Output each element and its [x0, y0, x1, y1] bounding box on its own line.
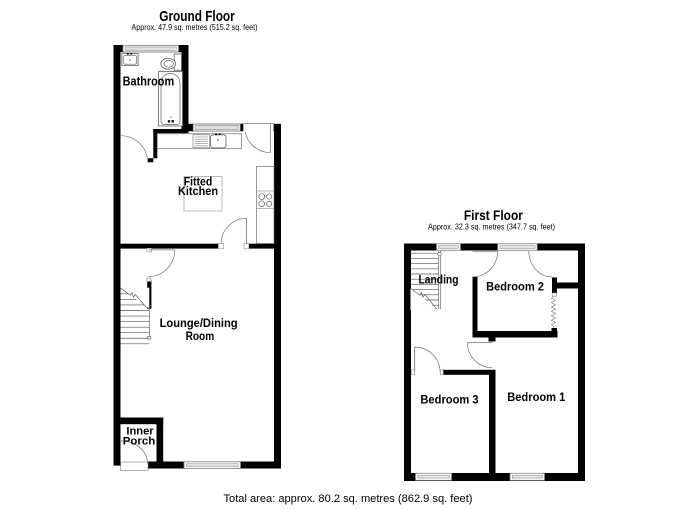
svg-text:Approx. 32.3 sq. metres (347.7: Approx. 32.3 sq. metres (347.7 sq. feet)	[428, 221, 555, 231]
svg-text:Bedroom 3: Bedroom 3	[420, 393, 478, 407]
svg-text:Bathroom: Bathroom	[123, 74, 175, 89]
svg-text:Lounge/Dining: Lounge/Dining	[160, 316, 238, 330]
svg-text:Kitchen: Kitchen	[178, 184, 218, 198]
svg-text:Landing: Landing	[419, 272, 459, 286]
svg-text:Total area: approx. 80.2 sq. m: Total area: approx. 80.2 sq. metres (862…	[224, 493, 473, 505]
svg-text:Room: Room	[186, 329, 215, 343]
svg-text:Bedroom 1: Bedroom 1	[507, 390, 565, 404]
svg-text:Bedroom 2: Bedroom 2	[486, 280, 544, 294]
svg-text:Porch: Porch	[123, 436, 156, 448]
svg-text:Approx. 47.9 sq. metres (515.2: Approx. 47.9 sq. metres (515.2 sq. feet)	[132, 22, 258, 32]
